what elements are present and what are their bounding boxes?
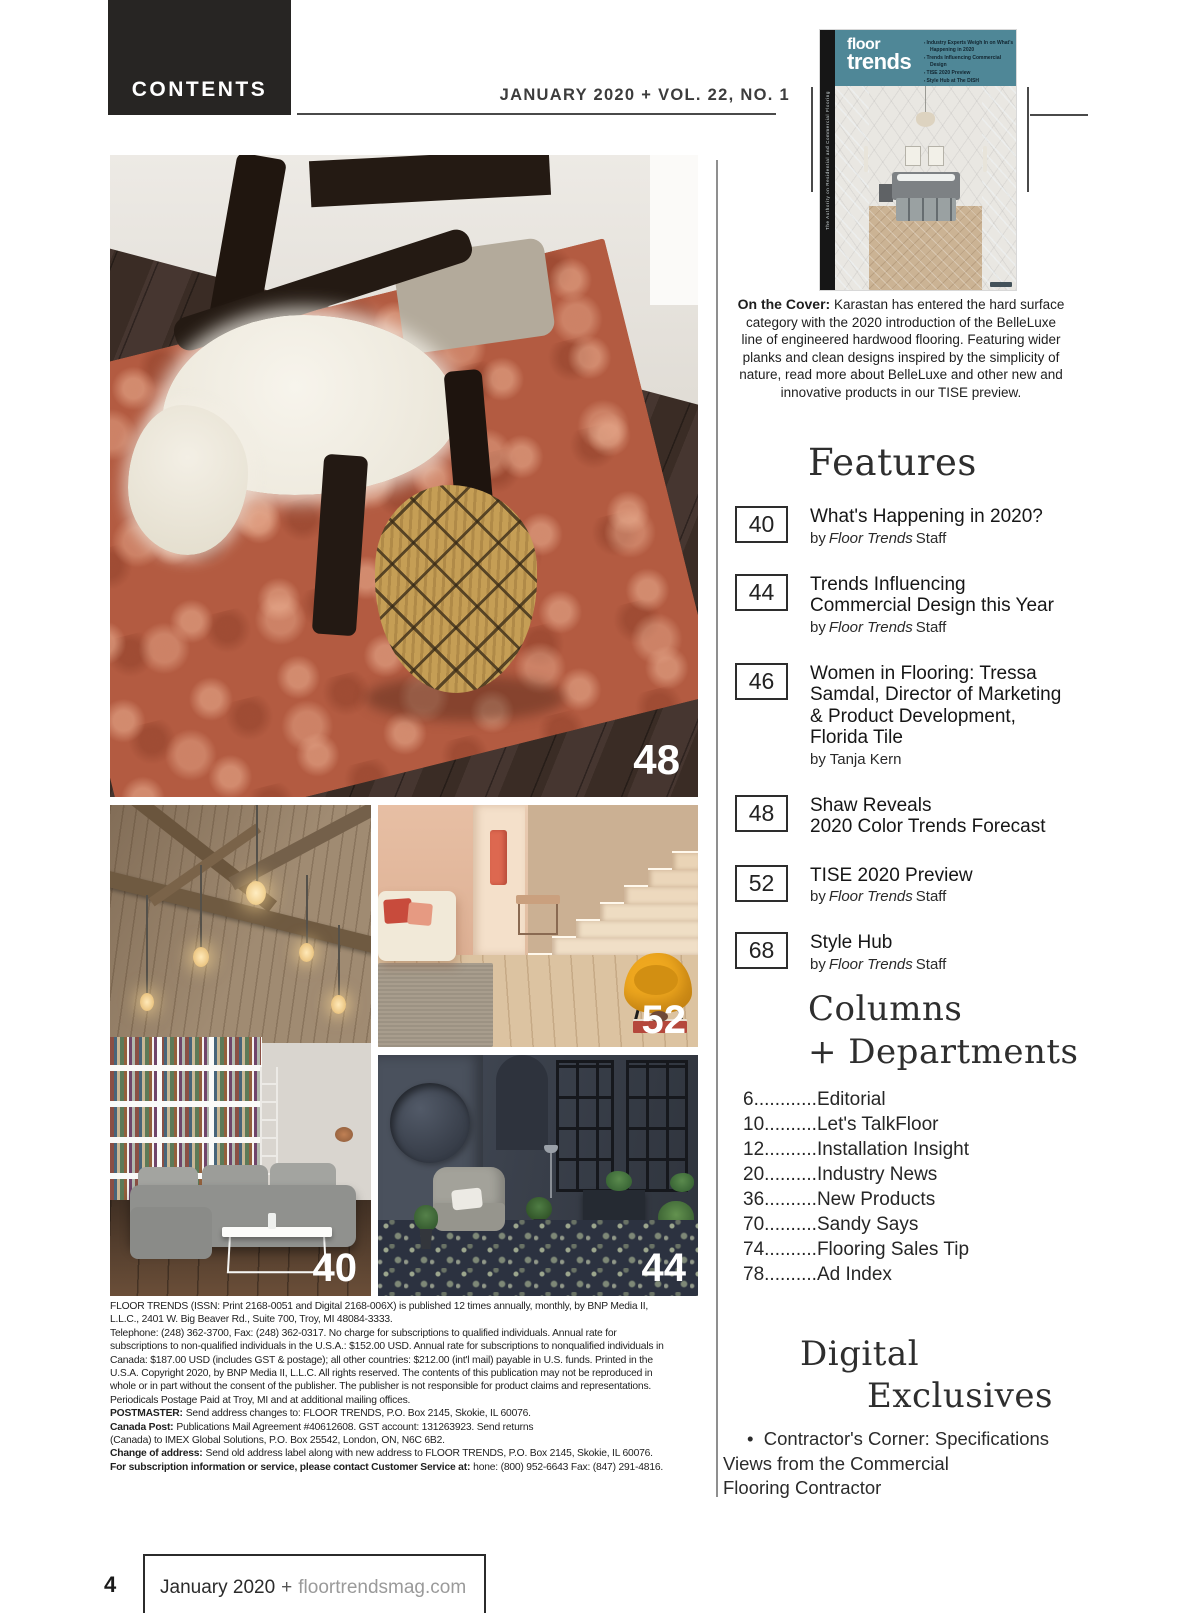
digital-exclusives-heading: Digital Exclusives [800,1333,1053,1417]
plant [414,1205,438,1231]
feature-item[interactable]: 48 Shaw Reveals 2020 Color Trends Foreca… [735,795,1067,838]
features-list: 40 What's Happening in 2020? byFloor Tre… [735,506,1067,1000]
departments-heading: Columns + Departments [808,988,1079,1074]
cover-coverlines: Industry Experts Weigh In on What's Happ… [924,39,1014,85]
cover-nightstand [879,184,893,202]
photo-page-number: 52 [642,1000,687,1040]
footer-issue: January 2020 [160,1577,275,1598]
cover-spine: The Authority on Residential and Commerc… [820,30,835,290]
stair-step [576,919,698,938]
department-entry[interactable]: 78..........Ad Index [743,1262,969,1287]
pendant-bulb [299,943,314,962]
bullet-icon: • [747,1428,753,1449]
stair-step [552,936,698,955]
stair-step [600,902,698,921]
plant [670,1173,694,1192]
pendant-bulb [331,995,346,1014]
feature-page-badge: 44 [735,574,788,611]
column-divider [716,160,718,1497]
feature-page-badge: 46 [735,663,788,700]
cover-cropmark-right [1027,87,1029,192]
feature-byline: byFloor TrendsStaff [810,888,973,905]
feature-title[interactable]: Shaw Reveals 2020 Color Trends Forecast [810,795,1046,838]
coffee-table-top [222,1227,332,1237]
department-entry[interactable]: 6............Editorial [743,1087,969,1112]
window-light [650,155,698,305]
pendant-bulb [193,947,209,967]
magazine-cover-thumbnail[interactable]: The Authority on Residential and Commerc… [820,30,1016,290]
photo-page-number: 48 [633,739,680,781]
digital-exclusives-item[interactable]: • Contractor's Corner: Specifications Vi… [723,1427,1058,1501]
feature-title[interactable]: TISE 2020 Preview [810,865,973,887]
floor-trends-logo: floor trends [847,37,911,73]
cover-art-frame [905,146,921,166]
feature-title[interactable]: What's Happening in 2020? [810,506,1043,528]
stair-step [624,885,698,904]
feature-title[interactable]: Women in Flooring: Tressa Samdal, Direct… [810,663,1067,749]
pendant-bulb [140,993,154,1011]
departments-list: 6............Editorial 10..........Let's… [743,1087,969,1287]
cover-door-handle [864,146,868,172]
feature-item[interactable]: 46 Women in Flooring: Tressa Samdal, Dir… [735,663,1067,768]
cover-publisher-mark [990,282,1012,287]
white-pillow [451,1187,483,1210]
hanging-towel [490,830,507,885]
sofa-chaise [130,1207,212,1259]
feature-byline: byFloor TrendsStaff [810,619,1067,636]
photo-staircase-room: 52 [378,805,698,1047]
department-entry[interactable]: 36..........New Products [743,1187,969,1212]
feature-byline: byFloor TrendsStaff [810,956,946,973]
tall-window [556,1060,614,1192]
feature-item[interactable]: 52 TISE 2020 Preview byFloor TrendsStaff [735,865,1067,906]
department-entry[interactable]: 70..........Sandy Says [743,1212,969,1237]
header-rule [297,113,776,115]
feature-item[interactable]: 44 Trends Influencing Commercial Design … [735,574,1067,636]
pendant-bulb [246,881,266,905]
arc-lamp-shade [335,1127,353,1142]
plant [606,1171,632,1191]
photo-page-number: 40 [313,1248,358,1288]
contents-title: CONTENTS [132,78,268,102]
photo-library-living-room: 40 [110,805,371,1296]
department-entry[interactable]: 12..........Installation Insight [743,1137,969,1162]
issue-date-volume: JANUARY 2020 + VOL. 22, NO. 1 [297,86,790,105]
feature-item[interactable]: 68 Style Hub byFloor TrendsStaff [735,932,1067,973]
cover-spine-text: The Authority on Residential and Commerc… [820,30,835,290]
plant [526,1197,552,1221]
footer-folio-box: January 2020+floortrendsmag.com [143,1554,486,1613]
cover-pendant-lamp [916,112,935,127]
circle-wall-recess [390,1083,470,1163]
department-entry[interactable]: 20..........Industry News [743,1162,969,1187]
on-the-cover-blurb: On the Cover: Karastan has entered the h… [736,296,1066,401]
cover-door-handle [983,146,987,172]
feature-item[interactable]: 40 What's Happening in 2020? byFloor Tre… [735,506,1067,547]
feature-page-badge: 48 [735,795,788,832]
stair-step [648,868,698,887]
console-table [518,901,558,935]
stair-step [672,851,698,870]
publication-fine-print: FLOOR TRENDS (ISSN: Print 2168-0051 and … [110,1300,667,1474]
department-entry[interactable]: 74..........Flooring Sales Tip [743,1237,969,1262]
tall-window [626,1060,688,1192]
features-heading: Features [808,441,977,484]
pink-pillow [407,902,433,926]
feature-title[interactable]: Style Hub [810,932,946,954]
cover-barn-door-right [982,86,1016,290]
feature-page-badge: 68 [735,932,788,969]
plus-separator: + [281,1577,292,1598]
department-entry[interactable]: 10..........Let's TalkFloor [743,1112,969,1137]
feature-byline: byFloor TrendsStaff [810,530,1043,547]
contents-page: CONTENTS JANUARY 2020 + VOL. 22, NO. 1 T… [0,0,1200,1613]
footer-website-link[interactable]: floortrendsmag.com [298,1577,466,1598]
photo-page-number: 44 [642,1248,687,1288]
cover-cropmark-left [811,87,813,192]
cover-art-frame [928,146,944,166]
feature-byline: by Tanja Kern [810,751,1067,768]
area-rug [378,963,493,1047]
cover-storage-bench [896,198,956,221]
feature-page-badge: 52 [735,865,788,902]
page-number: 4 [104,1572,116,1598]
photo-dark-lounge: 44 [378,1055,698,1296]
cover-barn-door-left [835,86,869,290]
arch-niche [496,1055,548,1150]
cover-photo-bedroom [835,86,1016,290]
photo-rug-feature: 48 [110,155,698,797]
sideboard [583,1190,645,1220]
cover-rule-right [1030,114,1088,116]
contents-banner: CONTENTS [108,0,291,115]
feature-page-badge: 40 [735,506,788,543]
floor-lamp-pole [550,1150,552,1198]
feature-title[interactable]: Trends Influencing Commercial Design thi… [810,574,1067,617]
